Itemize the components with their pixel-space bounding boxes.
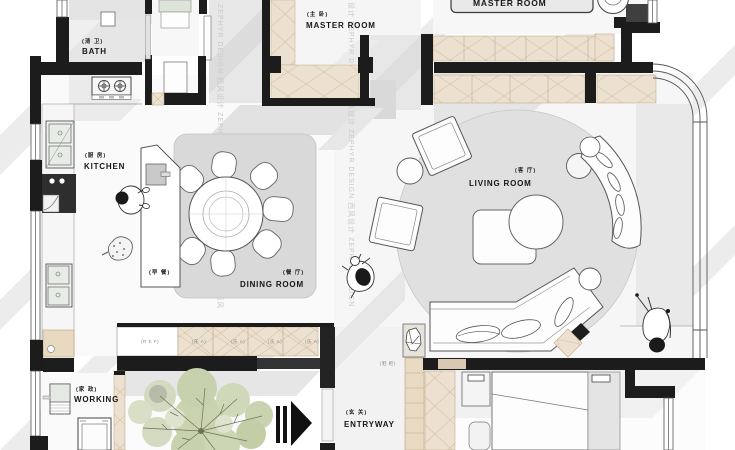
- svg-text:(餐 厅): (餐 厅): [283, 268, 304, 276]
- svg-text:(R E F): (R E F): [141, 339, 159, 344]
- svg-text:(氐 A): (氐 A): [231, 338, 245, 345]
- svg-text:(早 餐): (早 餐): [149, 268, 170, 276]
- svg-text:(鞋 柜): (鞋 柜): [380, 360, 396, 367]
- svg-text:(主 卧): (主 卧): [307, 10, 328, 18]
- svg-text:WORKING: WORKING: [74, 395, 119, 404]
- svg-text:(氐 A): (氐 A): [192, 338, 206, 345]
- svg-text:(氐 A): (氐 A): [268, 338, 282, 345]
- svg-text:MASTER ROOM: MASTER ROOM: [473, 0, 547, 8]
- svg-text:(氐 A): (氐 A): [305, 338, 319, 345]
- svg-text:LIVING ROOM: LIVING ROOM: [469, 179, 532, 188]
- svg-text:KITCHEN: KITCHEN: [84, 162, 125, 171]
- svg-text:ENTRYWAY: ENTRYWAY: [344, 420, 395, 429]
- svg-text:BATH: BATH: [82, 47, 107, 56]
- svg-text:(客 厅): (客 厅): [515, 166, 536, 174]
- svg-text:MASTER ROOM: MASTER ROOM: [306, 21, 376, 30]
- svg-text:DINING ROOM: DINING ROOM: [240, 280, 304, 289]
- svg-text:(清 卫): (清 卫): [82, 37, 103, 45]
- svg-text:(玄 关): (玄 关): [346, 408, 367, 416]
- svg-text:(厨 房): (厨 房): [85, 151, 106, 159]
- svg-text:(家 政): (家 政): [76, 385, 97, 393]
